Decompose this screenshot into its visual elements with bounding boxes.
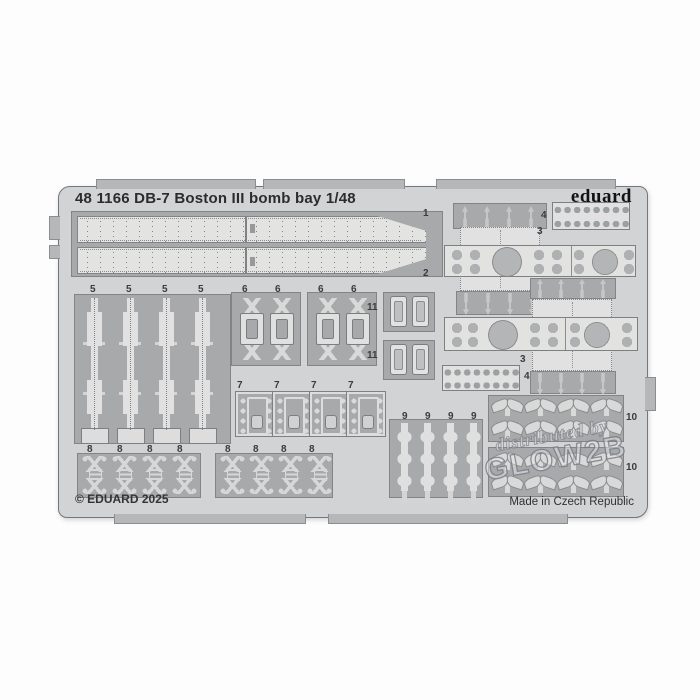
part-number-label: 11 (367, 303, 378, 313)
fret-tab (328, 514, 568, 524)
hinge-pin (537, 279, 543, 298)
part-number-label: 1 (423, 209, 429, 219)
hinge-pin (600, 279, 606, 298)
part-number-label: 11 (367, 351, 378, 361)
hinge-pin (579, 279, 585, 298)
part-11-plate (390, 344, 407, 375)
part-number-label: 7 (237, 381, 243, 391)
part-11-plate (412, 296, 429, 327)
hinge-pin-field (453, 203, 547, 229)
hinge-pin (579, 373, 585, 395)
part-number-label: 5 (162, 285, 168, 295)
product-photo: 48 1166 DB-7 Boston III bomb bay 1/48 ed… (0, 0, 700, 700)
part-4-hole-strip (552, 202, 630, 230)
hinge-pin (484, 206, 490, 228)
hinge-pin-field (530, 278, 616, 299)
part-number-label: 4 (524, 372, 530, 382)
part-3-circle-band (444, 317, 638, 351)
part-number-label: 9 (471, 412, 477, 422)
part-2-bomb-bay-door (77, 247, 435, 274)
hinge-pin (528, 206, 534, 228)
part-number-label: 8 (177, 445, 183, 455)
part-6-bracket (239, 298, 265, 360)
part-10-bracket (558, 398, 589, 418)
part-8-lattice (278, 456, 303, 494)
part-number-label: 5 (126, 285, 132, 295)
part-6-bracket (315, 298, 341, 360)
part-number-label: 8 (87, 445, 93, 455)
part-5-rib (119, 298, 141, 430)
part-1-bomb-bay-door (77, 216, 435, 243)
part-10-bracket (591, 475, 622, 495)
part-11-plate (412, 344, 429, 375)
hinge-pin (506, 206, 512, 228)
part-8-lattice (112, 456, 137, 494)
part-number-label: 8 (147, 445, 153, 455)
part-8-lattice (220, 456, 245, 494)
part-7-frame (272, 391, 312, 437)
part-number-label: 3 (537, 227, 543, 237)
copyright-text: © EDUARD 2025 (75, 492, 169, 506)
part-9-strip (397, 423, 412, 491)
part-5-rib (83, 298, 105, 430)
sheet-title: 48 1166 DB-7 Boston III bomb bay 1/48 (75, 190, 356, 207)
part-number-label: 10 (626, 463, 637, 473)
part-8-lattice (82, 456, 107, 494)
part-number-label: 8 (281, 445, 287, 455)
part-8-lattice (249, 456, 274, 494)
hinge-pin (462, 206, 468, 228)
fret-tab (96, 179, 256, 189)
part-number-label: 5 (198, 285, 204, 295)
part-8-lattice (307, 456, 332, 494)
part-number-label: 8 (253, 445, 259, 455)
made-in-text: Made in Czech Republic (509, 496, 634, 508)
part-number-label: 7 (274, 381, 280, 391)
part-7-frame (346, 391, 386, 437)
part-number-label: 9 (448, 412, 454, 422)
part-10-bracket (525, 398, 556, 418)
hinge-pin (537, 373, 543, 395)
part-6-bracket (269, 298, 295, 360)
hinge-pin (507, 293, 513, 315)
hinge-pin (558, 279, 564, 298)
part-4-hole-strip (442, 365, 520, 391)
part-11-plate (390, 296, 407, 327)
part-number-label: 7 (311, 381, 317, 391)
part-number-label: 8 (225, 445, 231, 455)
part-number-label: 6 (351, 285, 357, 295)
hinge-pin (558, 373, 564, 395)
part-8-lattice (142, 456, 167, 494)
part-8-lattice (172, 456, 197, 494)
hinge-pin-field (530, 371, 616, 394)
part-number-label: 9 (402, 412, 408, 422)
hinge-pin (485, 293, 491, 315)
fret-tab (263, 179, 405, 189)
part-5-rib (191, 298, 213, 430)
part-7-frame (309, 391, 349, 437)
part-5-rib (155, 298, 177, 430)
fret-tab (49, 245, 60, 259)
part-number-label: 2 (423, 269, 429, 279)
fret-tab (114, 514, 306, 524)
part-number-label: 9 (425, 412, 431, 422)
part-number-label: 4 (541, 211, 547, 221)
photo-etch-sheet: 48 1166 DB-7 Boston III bomb bay 1/48 ed… (58, 186, 648, 518)
part-3-circle-band (444, 245, 636, 277)
part-number-label: 6 (318, 285, 324, 295)
hinge-pin (463, 293, 469, 315)
part-10-bracket (558, 475, 589, 495)
part-number-label: 8 (309, 445, 315, 455)
part-number-label: 5 (90, 285, 96, 295)
part-number-label: 8 (117, 445, 123, 455)
part-number-label: 6 (275, 285, 281, 295)
part-9-strip (420, 423, 435, 491)
fret-tab (49, 216, 60, 240)
fret-tab (436, 179, 616, 189)
part-number-label: 3 (520, 355, 526, 365)
part-number-label: 6 (242, 285, 248, 295)
part-10-bracket (492, 398, 523, 418)
hinge-pin (600, 373, 606, 395)
part-7-frame (235, 391, 275, 437)
part-number-label: 7 (348, 381, 354, 391)
